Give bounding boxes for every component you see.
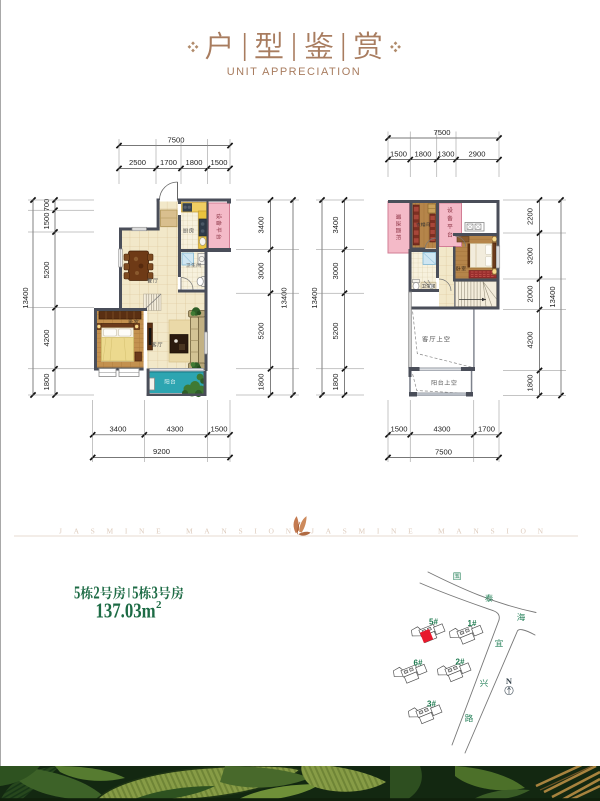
svg-text:5200: 5200 xyxy=(257,323,266,340)
svg-text:13400: 13400 xyxy=(280,287,289,308)
svg-text:2#: 2# xyxy=(456,658,465,667)
svg-text:3400: 3400 xyxy=(110,425,127,434)
svg-text:1800: 1800 xyxy=(331,374,340,391)
svg-text:4200: 4200 xyxy=(526,332,535,349)
svg-text:5200: 5200 xyxy=(331,323,340,340)
svg-text:13400: 13400 xyxy=(310,287,319,308)
svg-text:N: N xyxy=(506,676,513,686)
svg-text:9200: 9200 xyxy=(153,447,170,456)
svg-text:7500: 7500 xyxy=(435,447,452,456)
svg-text:13400: 13400 xyxy=(548,286,557,307)
svg-text:3000: 3000 xyxy=(257,263,266,280)
svg-text:4200: 4200 xyxy=(42,330,51,347)
svg-text:7500: 7500 xyxy=(168,135,185,144)
svg-text:1800: 1800 xyxy=(186,158,203,167)
svg-text:4300: 4300 xyxy=(434,425,451,434)
svg-text:1800: 1800 xyxy=(526,375,535,392)
svg-text:2500: 2500 xyxy=(129,158,146,167)
svg-text:1500: 1500 xyxy=(390,149,407,158)
svg-text:5#: 5# xyxy=(429,618,438,627)
svg-text:1800: 1800 xyxy=(415,149,432,158)
svg-text:3000: 3000 xyxy=(331,263,340,280)
svg-text:137.03m: 137.03m xyxy=(96,600,156,623)
svg-text:2: 2 xyxy=(156,599,162,611)
svg-text:1500: 1500 xyxy=(211,158,228,167)
svg-text:1700: 1700 xyxy=(478,425,495,434)
svg-text:1500: 1500 xyxy=(42,213,51,230)
svg-text:5: 5 xyxy=(74,584,81,604)
svg-text:1500: 1500 xyxy=(211,425,228,434)
svg-text:4300: 4300 xyxy=(167,425,184,434)
svg-text:2000: 2000 xyxy=(526,286,535,303)
svg-text:2900: 2900 xyxy=(469,149,486,158)
svg-text:700: 700 xyxy=(42,199,51,212)
svg-text:3400: 3400 xyxy=(331,217,340,234)
svg-text:3400: 3400 xyxy=(257,217,266,234)
svg-text:7500: 7500 xyxy=(434,128,451,137)
svg-text:1800: 1800 xyxy=(42,374,51,391)
svg-text:3200: 3200 xyxy=(526,248,535,265)
svg-text:1#: 1# xyxy=(468,619,477,628)
svg-text:6#: 6# xyxy=(414,659,423,668)
svg-text:13400: 13400 xyxy=(21,287,30,308)
svg-text:2200: 2200 xyxy=(526,208,535,225)
svg-text:5200: 5200 xyxy=(42,262,51,279)
svg-text:3#: 3# xyxy=(427,700,436,709)
svg-text:1700: 1700 xyxy=(160,158,177,167)
svg-text:1300: 1300 xyxy=(438,149,455,158)
svg-text:UNIT APPRECIATION: UNIT APPRECIATION xyxy=(227,66,362,78)
svg-text:1800: 1800 xyxy=(257,374,266,391)
svg-text:1500: 1500 xyxy=(391,425,408,434)
